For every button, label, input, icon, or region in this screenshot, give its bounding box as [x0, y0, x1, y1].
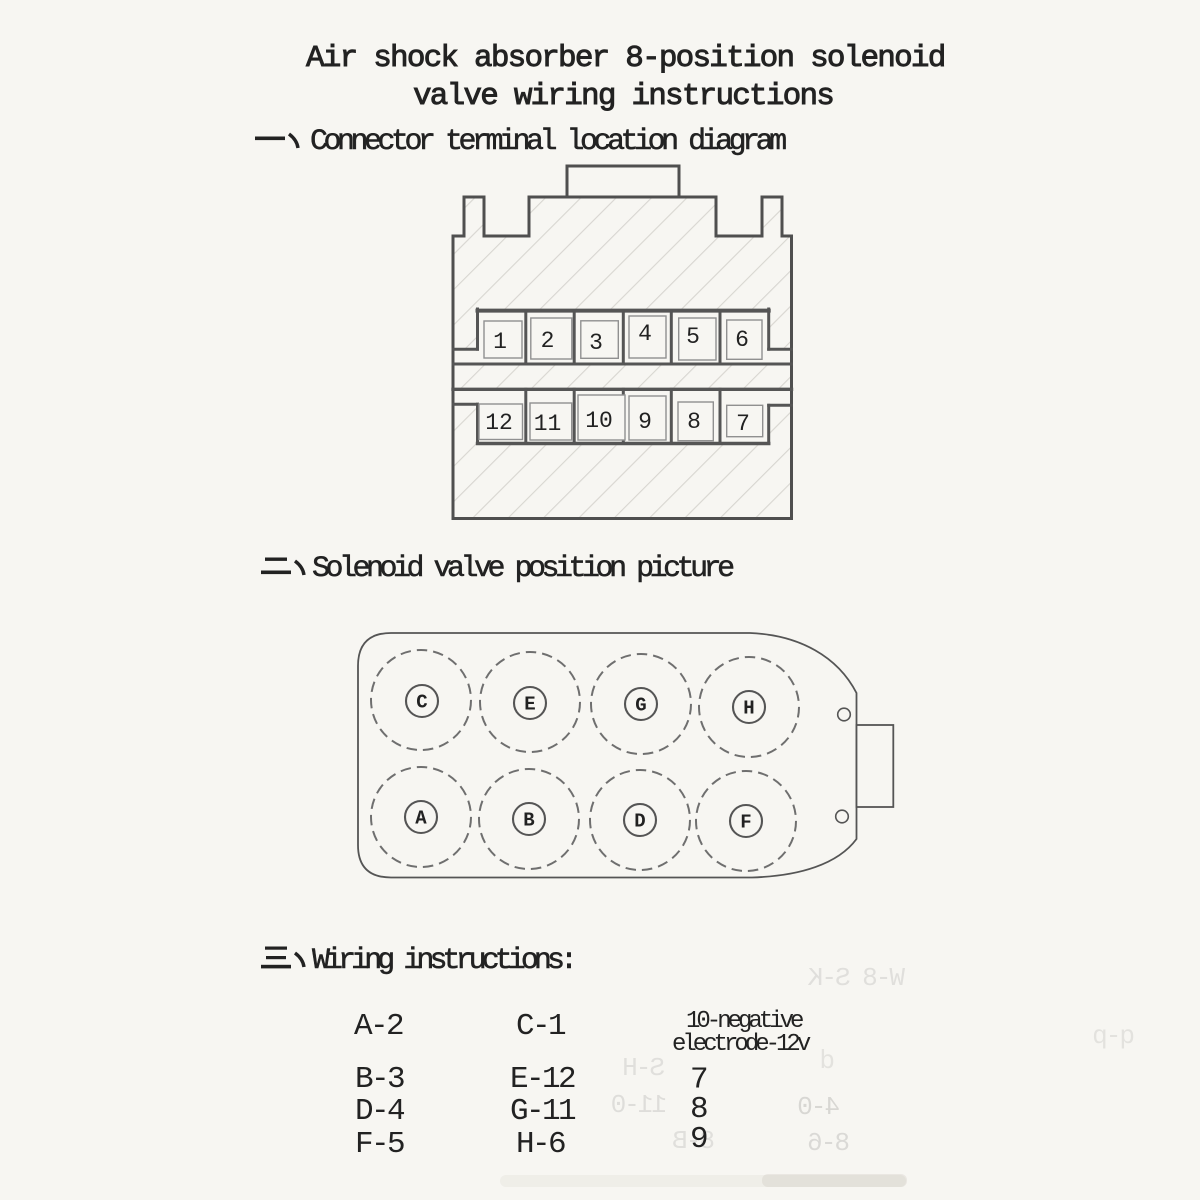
- svg-text:9: 9: [638, 409, 652, 435]
- svg-text:W-8 S-K: W-8 S-K: [807, 963, 905, 993]
- svg-text:H-6: H-6: [516, 1127, 565, 1162]
- svg-text:S-H: S-H: [624, 1053, 665, 1083]
- svg-text:C-1: C-1: [516, 1009, 566, 1044]
- svg-text:H: H: [743, 698, 754, 720]
- svg-text:B-3: B-3: [355, 1062, 404, 1097]
- svg-text:8: 8: [687, 409, 701, 435]
- svg-text:electrode-12v: electrode-12v: [672, 1031, 811, 1058]
- svg-text:D-4: D-4: [355, 1094, 405, 1129]
- svg-text:3: 3: [589, 330, 603, 356]
- svg-text:B: B: [523, 810, 534, 832]
- svg-text:5: 5: [686, 324, 700, 350]
- svg-text:1: 1: [493, 329, 507, 355]
- svg-text:G: G: [635, 695, 646, 717]
- svg-text:E-12: E-12: [510, 1062, 575, 1097]
- svg-text:F-5: F-5: [355, 1127, 404, 1162]
- svg-text:Solenoid valve position pictur: Solenoid valve position picture: [312, 552, 734, 586]
- svg-text:A-2: A-2: [354, 1009, 403, 1044]
- svg-text:Air shock absorber 8-position: Air shock absorber 8-position solenoid: [306, 41, 945, 76]
- svg-text:7: 7: [736, 411, 750, 437]
- svg-text:E: E: [524, 694, 535, 716]
- svg-text:F: F: [740, 812, 751, 834]
- svg-text:D: D: [634, 811, 645, 833]
- svg-text:11-0: 11-0: [612, 1090, 667, 1120]
- svg-text:8-B: 8-B: [673, 1126, 715, 1156]
- svg-text:6: 6: [735, 327, 749, 353]
- svg-text:4-0: 4-0: [799, 1092, 840, 1122]
- svg-text:10: 10: [585, 408, 613, 434]
- svg-text:valve wiring instructions: valve wiring instructions: [413, 79, 833, 114]
- svg-text:G-11: G-11: [510, 1094, 576, 1129]
- svg-text:A: A: [415, 808, 427, 830]
- svg-text:q-p: q-p: [1094, 1021, 1135, 1051]
- svg-text:Connector terminal location di: Connector terminal location diagram: [310, 125, 786, 159]
- svg-text:4: 4: [638, 321, 652, 347]
- svg-text:Wiring instructions:: Wiring instructions:: [312, 944, 573, 978]
- svg-text:12: 12: [485, 410, 513, 436]
- svg-text:2: 2: [541, 328, 555, 354]
- svg-text:8-6: 8-6: [809, 1128, 850, 1158]
- svg-text:d: d: [821, 1046, 835, 1076]
- svg-text:11: 11: [534, 411, 562, 437]
- svg-text:C: C: [416, 692, 427, 714]
